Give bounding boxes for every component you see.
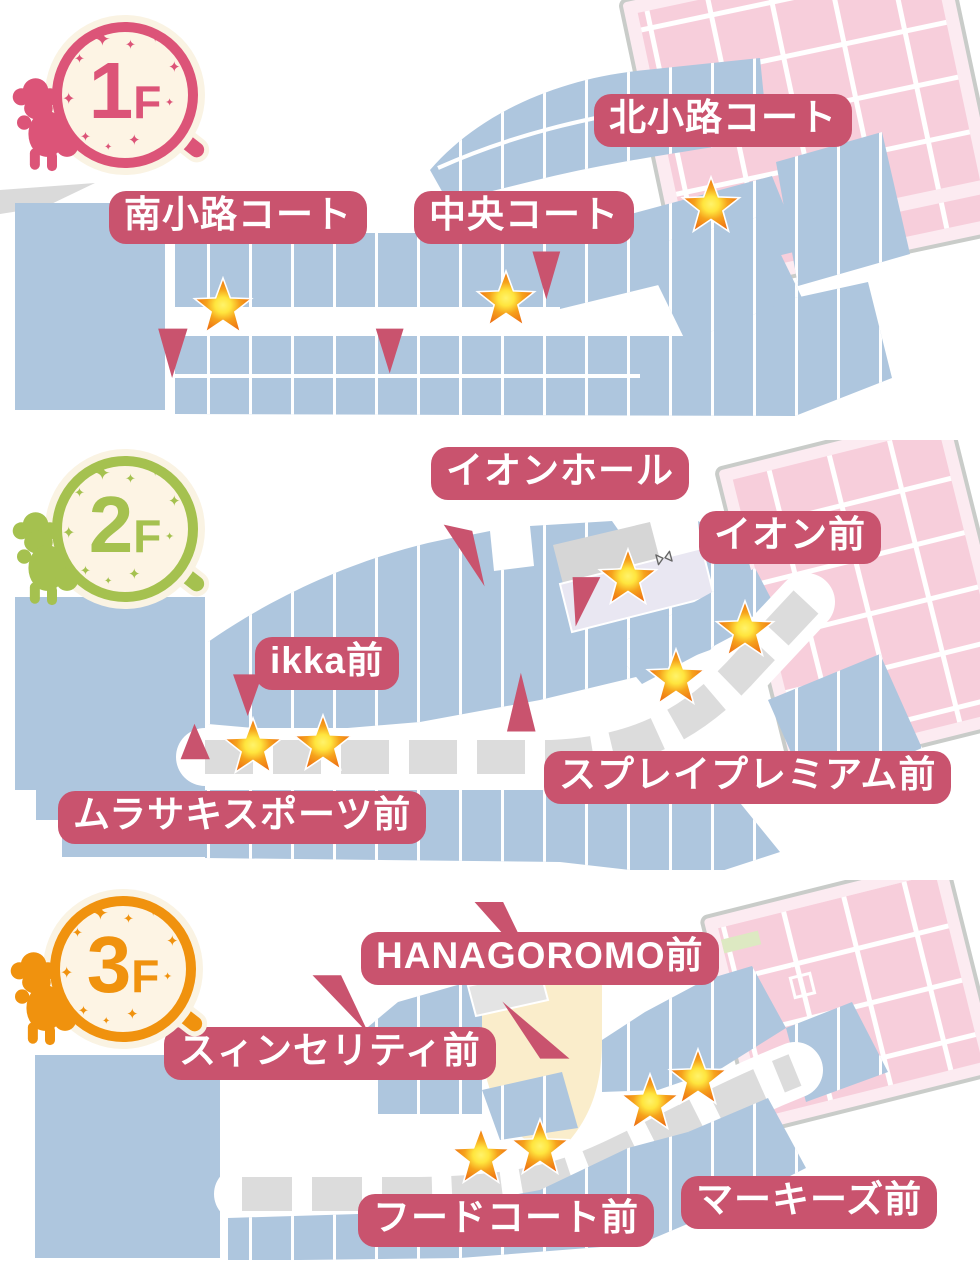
star-marker-ikka [291, 713, 355, 777]
sparkle-icon: ✦ [123, 912, 134, 925]
star-marker-hanagoromo [666, 1047, 730, 1111]
sparkle-icon: ✦ [60, 966, 73, 982]
floor-2-badge: 2F ✦✦✦✦✦✦✦✦✦✦ [8, 446, 218, 621]
sparkle-icon: ✦ [72, 926, 83, 939]
floor-suffix: F [133, 75, 161, 129]
sparkle-icon: ✦ [166, 934, 179, 949]
callout-kitakoji-court: 北小路コート [594, 94, 852, 147]
callout-murasaki-sports: ムラサキスポーツ前 [58, 791, 426, 844]
mascot-dog-icon [4, 74, 90, 174]
sparkle-icon: ✦ [62, 526, 75, 542]
callout-ikka-mae: ikka前 [255, 637, 399, 690]
sparkle-icon: ✦ [74, 52, 85, 65]
sparkle-icon: ✦ [148, 28, 162, 45]
sparkle-icon: ✦ [128, 567, 141, 582]
star-marker-aeon-mae [713, 599, 777, 663]
sparkle-icon: ✦ [126, 1007, 139, 1022]
map-left-block-3f [35, 1055, 220, 1258]
star-marker-spray-premium [644, 647, 708, 711]
star-marker-chuo [474, 269, 538, 333]
callout-marquees: マーキーズ前 [681, 1176, 937, 1229]
sparkle-icon: ✦ [148, 462, 162, 479]
sparkle-icon: ✦ [128, 133, 141, 148]
sparkle-icon: ✦ [163, 972, 172, 983]
sparkle-icon: ✦ [125, 472, 136, 485]
callout-spray-premium: スプレイプレミアム前 [544, 751, 951, 804]
floor-guide-page: 北小路コート 南小路コート 中央コート イオンホール イオン前 ikka前 ムラ… [0, 0, 980, 1270]
sparkle-icon: ✦ [62, 92, 75, 108]
floor-suffix: F [133, 509, 161, 563]
floor-3-badge: 3F ✦✦✦✦✦✦✦✦✦✦ [6, 886, 216, 1061]
callout-aeon-hall: イオンホール [431, 447, 689, 500]
callout-hanagoromo: HANAGOROMO前 [361, 932, 719, 985]
sparkle-icon: ✦ [168, 494, 181, 509]
sparkle-icon: ✦ [104, 143, 112, 153]
sparkle-icon: ✦ [80, 564, 91, 577]
star-marker-murasaki [221, 716, 285, 780]
sparkle-icon: ✦ [165, 98, 174, 109]
star-marker-sincerity [449, 1126, 513, 1190]
sparkle-icon: ✦ [102, 1017, 110, 1027]
floor-1-badge: 1F ✦✦✦✦✦✦✦✦✦✦ [8, 12, 218, 187]
sparkle-icon: ✦ [104, 577, 112, 587]
floor-suffix: F [131, 949, 159, 1003]
sparkle-icon: ✦ [74, 486, 85, 499]
sparkle-icon: ✦ [78, 1004, 89, 1017]
sparkle-icon: ✦ [92, 904, 109, 924]
callout-aeon-mae: イオン前 [699, 511, 881, 564]
mascot-dog-icon [4, 508, 90, 608]
star-marker-kitakoji [679, 175, 743, 239]
star-marker-aeon-hall [596, 547, 660, 611]
mascot-dog-icon [2, 948, 88, 1048]
callout-chuo-court: 中央コート [414, 191, 634, 244]
sparkle-icon: ✦ [146, 902, 160, 919]
sparkle-icon: ✦ [165, 532, 174, 543]
sparkle-icon: ✦ [94, 30, 111, 50]
callout-minamikoji-court: 南小路コート [109, 191, 367, 244]
star-marker-food-court [508, 1117, 572, 1181]
sparkle-icon: ✦ [94, 464, 111, 484]
sparkle-icon: ✦ [125, 38, 136, 51]
callout-food-court: フードコート前 [358, 1194, 654, 1247]
star-marker-minamikoji [191, 276, 255, 340]
sparkle-icon: ✦ [80, 130, 91, 143]
sparkle-icon: ✦ [168, 60, 181, 75]
